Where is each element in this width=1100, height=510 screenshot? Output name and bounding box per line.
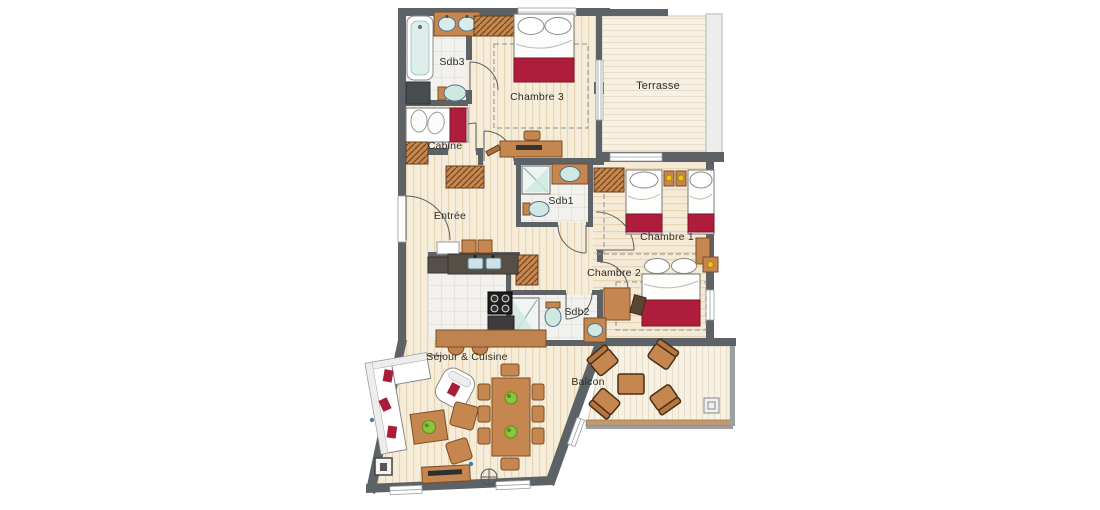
sensor-dot-2 xyxy=(469,462,473,466)
cabine-wardrobe-icon xyxy=(406,142,428,164)
entry-door-gap xyxy=(398,196,406,242)
nightstand-chambre2 xyxy=(703,257,718,272)
room-label-sejour: Séjour & Cuisine xyxy=(426,351,507,363)
sensor-dot-1 xyxy=(370,418,374,422)
chambre1-wardrobe-icon xyxy=(594,168,624,192)
chambre2-desk xyxy=(604,288,630,320)
oven-icon xyxy=(488,316,514,330)
floor-drain-icon xyxy=(481,469,497,485)
sink-vanity-icon-sdb1 xyxy=(552,164,588,184)
room-label-entree: Entrée xyxy=(434,210,466,222)
room-label-terrasse: Terrasse xyxy=(636,80,680,92)
nightstand-1 xyxy=(664,171,674,186)
bed-double-chambre3 xyxy=(514,14,574,82)
shower-icon-sdb1 xyxy=(522,166,550,194)
balcony-table xyxy=(618,374,644,394)
window-chambre1-terrasse xyxy=(610,153,662,161)
coffee-table xyxy=(410,410,448,444)
room-label-sdb1: Sdb1 xyxy=(548,195,573,207)
terrasse-sliding-door xyxy=(596,60,603,120)
chambre3-wardrobe-icon xyxy=(474,16,514,36)
terrasse-balustrade xyxy=(706,14,722,154)
bed-single-1 xyxy=(626,170,662,234)
balcon-rail-edge xyxy=(586,426,733,429)
toilet-icon-sdb3 xyxy=(438,85,466,101)
corridor-closet-icon xyxy=(516,255,538,285)
bed-single-2 xyxy=(688,170,714,234)
sink-vanity-icon-sdb2 xyxy=(584,318,606,342)
room-label-chambre2: Chambre 2 xyxy=(587,267,641,279)
window-sejour-bottom-right xyxy=(496,480,530,489)
entree-wardrobe-icon xyxy=(446,166,484,188)
floorplan-drawing xyxy=(0,0,1100,510)
toilet-icon-sdb2 xyxy=(545,302,561,327)
balcon-right-edge xyxy=(730,346,735,426)
entree-stool-1 xyxy=(462,240,476,253)
room-label-chambre3: Chambre 3 xyxy=(510,91,564,103)
window-sejour-bottom-left xyxy=(390,485,422,494)
balcon-rail-wood xyxy=(586,420,733,426)
balcony-drain-icon xyxy=(704,398,719,413)
sejour-furniture xyxy=(365,353,544,485)
fireplace-icon xyxy=(375,458,392,475)
double-sink-vanity-icon xyxy=(434,12,480,36)
washing-machine-icon xyxy=(406,82,430,104)
toilet-icon-sdb1 xyxy=(523,202,549,217)
entree-sideboard xyxy=(437,242,459,254)
room-label-cabine: Cabine xyxy=(428,140,462,152)
kitchen-sink-counter xyxy=(448,254,518,274)
room-label-chambre1: Chambre 1 xyxy=(640,231,694,243)
room-label-sdb3: Sdb3 xyxy=(439,56,464,68)
window-chambre2-right xyxy=(706,290,714,320)
bathtub-icon xyxy=(407,16,433,80)
room-label-balcon: Balcon xyxy=(571,376,604,388)
entree-stool-2 xyxy=(478,240,492,253)
kitchen-counter-left xyxy=(428,257,450,273)
tv-unit xyxy=(422,465,471,483)
bunk-bed xyxy=(406,108,468,142)
nightstand-2 xyxy=(676,171,686,186)
room-label-sdb2: Sdb2 xyxy=(564,306,589,318)
stove-icon xyxy=(488,292,512,314)
floorplan-canvas: Sdb3 Chambre 3 Terrasse Cabine Entrée Sd… xyxy=(0,0,1100,510)
